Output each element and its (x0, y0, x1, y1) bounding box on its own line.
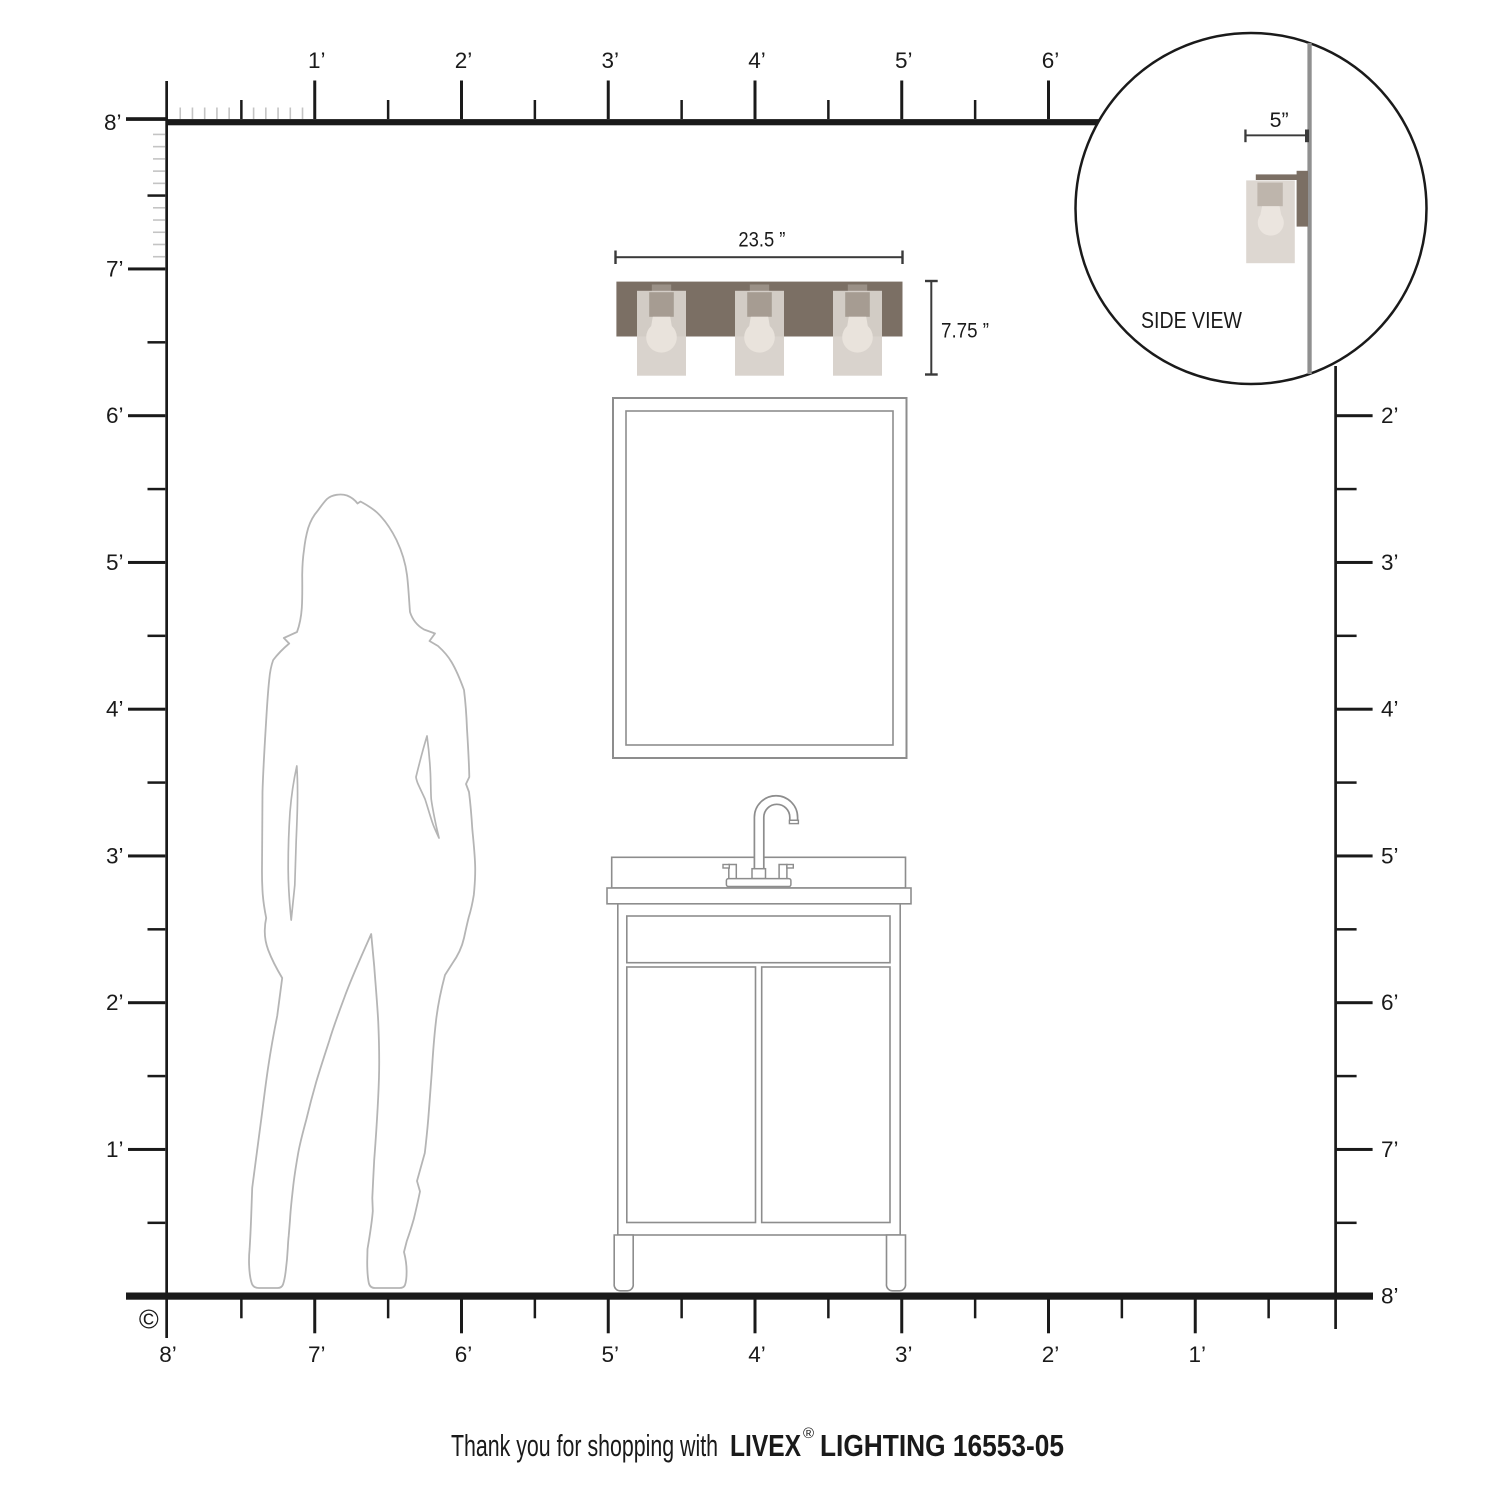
svg-text:5’: 5’ (106, 550, 124, 575)
svg-text:23.5 ”: 23.5 ” (738, 228, 785, 252)
svg-text:6’: 6’ (1042, 48, 1060, 73)
svg-text:6’: 6’ (455, 1342, 473, 1367)
svg-text:7’: 7’ (1381, 1137, 1399, 1162)
svg-text:4’: 4’ (748, 48, 766, 73)
svg-text:5”: 5” (1270, 108, 1289, 132)
svg-text:8’: 8’ (104, 110, 122, 135)
svg-text:®: ® (803, 1425, 814, 1442)
svg-text:2’: 2’ (1381, 403, 1399, 428)
svg-text:4’: 4’ (748, 1342, 766, 1367)
svg-text:2’: 2’ (455, 48, 473, 73)
svg-text:3’: 3’ (1381, 550, 1399, 575)
svg-text:2’: 2’ (106, 990, 124, 1015)
svg-text:7’: 7’ (308, 1342, 326, 1367)
svg-text:4’: 4’ (106, 697, 124, 722)
svg-text:5’: 5’ (601, 1342, 619, 1367)
svg-text:LIGHTING 16553-05: LIGHTING 16553-05 (820, 1428, 1064, 1463)
svg-text:1’: 1’ (1188, 1342, 1206, 1367)
svg-text:7.75 ”: 7.75 ” (941, 319, 989, 343)
svg-text:8’: 8’ (1381, 1284, 1399, 1309)
svg-text:8’: 8’ (159, 1342, 177, 1367)
svg-text:SIDE VIEW: SIDE VIEW (1141, 307, 1243, 333)
svg-text:LIVEX: LIVEX (730, 1428, 801, 1463)
svg-text:6’: 6’ (1381, 990, 1399, 1015)
svg-text:©: © (139, 1305, 159, 1335)
svg-text:7’: 7’ (106, 256, 124, 281)
svg-text:5’: 5’ (895, 48, 913, 73)
svg-text:2’: 2’ (1042, 1342, 1060, 1367)
svg-text:6’: 6’ (106, 403, 124, 428)
svg-text:Thank you for shopping with: Thank you for shopping with (451, 1428, 718, 1463)
svg-text:1’: 1’ (308, 48, 326, 73)
svg-text:3’: 3’ (106, 844, 124, 869)
svg-text:3’: 3’ (895, 1342, 913, 1367)
svg-text:1’: 1’ (106, 1137, 124, 1162)
svg-text:4’: 4’ (1381, 697, 1399, 722)
svg-text:5’: 5’ (1381, 844, 1399, 869)
svg-text:3’: 3’ (601, 48, 619, 73)
